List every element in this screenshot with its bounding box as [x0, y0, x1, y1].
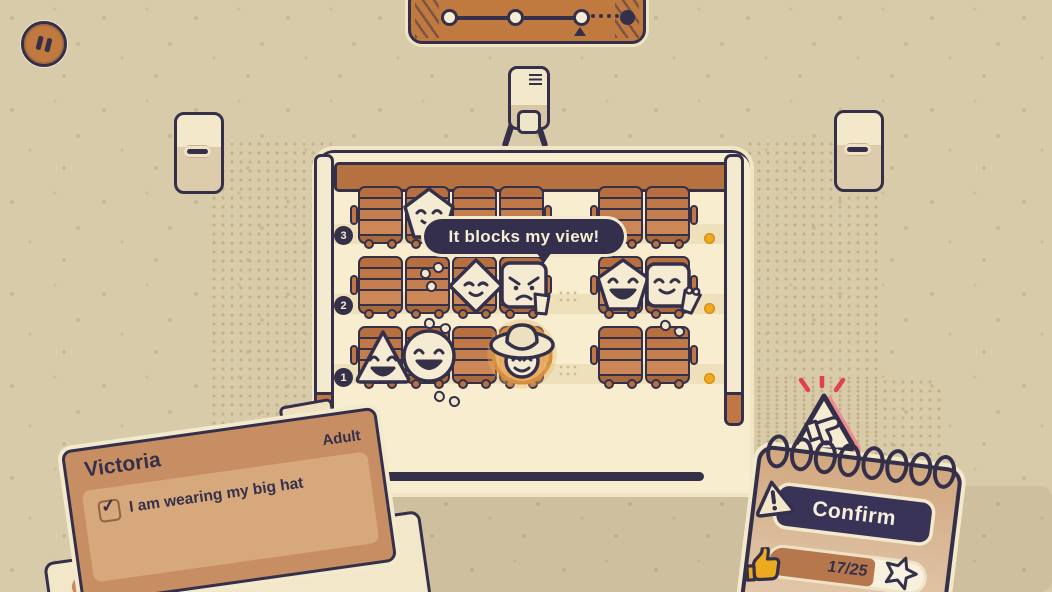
timeline-goal-icon [620, 10, 635, 25]
row-1-label: 1 [334, 368, 353, 387]
projector-vents [529, 74, 542, 85]
confirm-button-label: Confirm [811, 497, 897, 531]
seat-r2-l1[interactable] [358, 256, 403, 314]
armrest [350, 205, 358, 225]
trait-label: I am wearing my big hat [128, 475, 305, 517]
speech-bubble-tail [536, 252, 552, 263]
armrest [350, 275, 358, 295]
row-1-end-dot [704, 373, 715, 384]
confirm-button[interactable]: Confirm [775, 485, 933, 543]
right-rail [724, 154, 744, 426]
pause-button[interactable] [20, 20, 68, 68]
row-3-end-dot [704, 233, 715, 244]
room-entry-line [380, 472, 704, 481]
game-screen: 3 2 1 [0, 0, 1052, 592]
confirm-notepad: Confirm 17/25 [739, 444, 964, 592]
left-rail [314, 154, 334, 426]
right-door-handle [847, 147, 868, 152]
row-2-end-dot [704, 303, 715, 314]
alert-sparks-icon [801, 376, 843, 390]
guest-name: Victoria [83, 448, 162, 482]
guest-victoria-big-hat[interactable] [481, 314, 563, 394]
timeline-stop-2-icon [507, 9, 524, 26]
ticket-card[interactable]: Victoria Adult ✓ I am wearing my big hat [61, 407, 398, 592]
projector [502, 66, 550, 150]
hatch-decor-left [415, 0, 439, 38]
trait-checkbox: ✓ [97, 498, 122, 523]
progress-fill: 17/25 [767, 546, 876, 587]
guest-age-label: Adult [321, 427, 361, 449]
guest-square-happy-popcorn[interactable] [639, 256, 703, 318]
armrest [690, 205, 698, 225]
speech-bubble-text: It blocks my view! [449, 227, 600, 247]
pause-icon [36, 36, 53, 53]
timeline-current-marker [574, 27, 586, 36]
seat-r1-r1[interactable] [598, 326, 643, 384]
seat-r3-l1[interactable] [358, 186, 403, 244]
thumbs-up-icon [741, 546, 783, 588]
right-door [834, 110, 884, 192]
timeline-stop-3-icon [573, 9, 590, 26]
left-door [174, 112, 224, 194]
warning-triangle-icon [750, 476, 797, 521]
level-progress-timeline [408, 0, 646, 44]
row-2-label: 2 [334, 296, 353, 315]
timeline-stop-1-icon [441, 9, 458, 26]
armrest [690, 345, 698, 365]
armrest [590, 345, 598, 365]
guest-square-grumpy[interactable] [493, 254, 555, 316]
row-3-label: 3 [334, 226, 353, 245]
seat-r3-r2[interactable] [645, 186, 690, 244]
progress-label: 17/25 [825, 559, 869, 582]
check-icon: ✓ [99, 495, 117, 518]
left-door-handle [187, 149, 208, 154]
speech-bubble: It blocks my view! [424, 219, 624, 254]
projector-lens [517, 110, 541, 134]
guest-circle-laughing[interactable] [399, 326, 459, 386]
right-rail-cap [727, 392, 741, 423]
aisle-texture [558, 290, 580, 305]
